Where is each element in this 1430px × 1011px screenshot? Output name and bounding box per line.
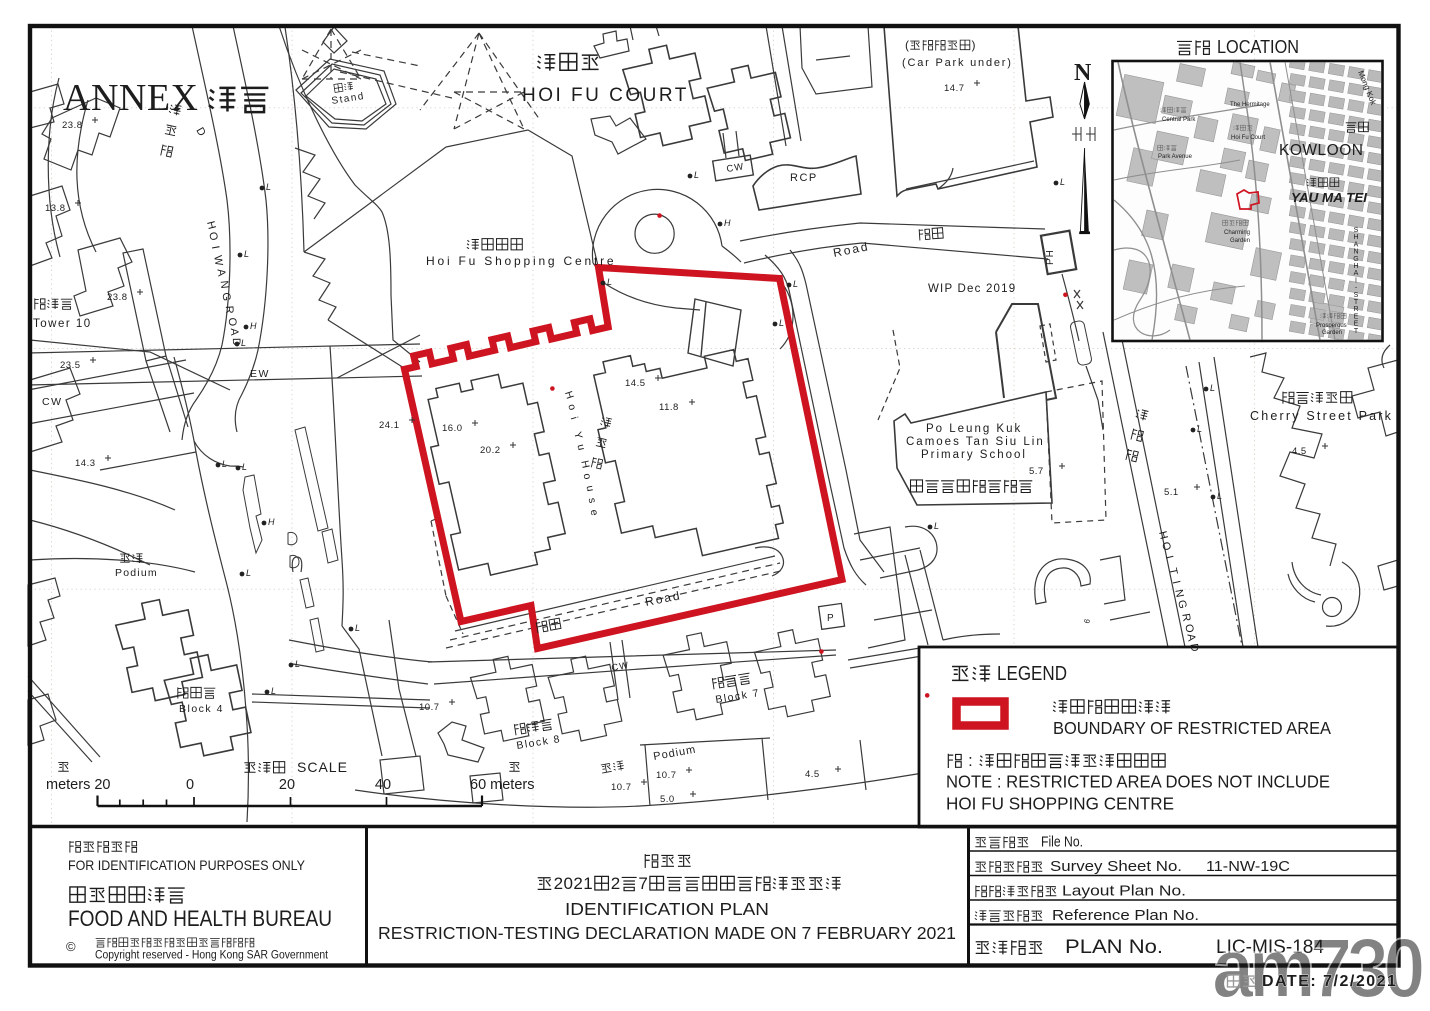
svg-text:5.1: 5.1 [1164, 487, 1179, 498]
svg-text:(Car Park under): (Car Park under) [902, 57, 1013, 69]
svg-text:13.8: 13.8 [45, 203, 66, 214]
svg-text:©: © [66, 939, 76, 954]
svg-text:L: L [1217, 491, 1222, 501]
svg-text:T: T [1354, 299, 1359, 306]
svg-text:14.5: 14.5 [625, 378, 646, 389]
svg-text:PH: PH [1045, 249, 1056, 265]
svg-text:5.0: 5.0 [660, 794, 675, 805]
svg-text:Cherry Street Park: Cherry Street Park [1250, 409, 1393, 423]
svg-text:KOWLOON: KOWLOON [1279, 142, 1363, 159]
svg-text:PLAN No.: PLAN No. [1065, 936, 1163, 958]
svg-text:O: O [226, 317, 238, 327]
svg-text:11.8: 11.8 [659, 402, 679, 413]
svg-text:ANNEX: ANNEX [63, 77, 198, 119]
svg-text:Copyright reserved - Hong Kong: Copyright reserved - Hong Kong SAR Gover… [95, 950, 329, 962]
svg-text:L: L [241, 338, 246, 348]
svg-text:Block 4: Block 4 [179, 703, 224, 715]
svg-text:YAU MA TEI: YAU MA TEI [1291, 191, 1368, 205]
svg-text:RESTRICTION-TESTING DECLARATIO: RESTRICTION-TESTING DECLARATION MADE ON … [378, 923, 956, 943]
svg-text:24.1: 24.1 [379, 420, 400, 431]
svg-text:HOI FU COURT: HOI FU COURT [522, 85, 689, 106]
svg-text:NOTE : RESTRICTED AREA DOES NO: NOTE : RESTRICTED AREA DOES NOT INCLUDE [946, 772, 1330, 792]
svg-text:40: 40 [375, 777, 391, 793]
svg-text:EW: EW [250, 368, 270, 380]
svg-text:I: I [1355, 277, 1357, 284]
svg-text:SCALE: SCALE [297, 759, 348, 775]
svg-text:HOI FU SHOPPING CENTRE: HOI FU SHOPPING CENTRE [946, 794, 1174, 814]
svg-text:Central Park: Central Park [1162, 117, 1196, 123]
svg-text:File No.: File No. [1041, 835, 1083, 851]
svg-text:L: L [295, 659, 300, 669]
svg-text:T: T [1354, 328, 1359, 335]
svg-text:Podium: Podium [115, 567, 158, 579]
svg-text:A: A [1354, 270, 1359, 277]
svg-text:WIP Dec 2019: WIP Dec 2019 [928, 283, 1016, 295]
svg-text:L: L [779, 318, 784, 328]
svg-text:16.0: 16.0 [442, 423, 463, 434]
svg-text:Camoes Tan Siu Lin: Camoes Tan Siu Lin [906, 436, 1045, 448]
svg-text:Po Leung Kuk: Po Leung Kuk [926, 423, 1022, 435]
svg-text:RCP: RCP [790, 172, 818, 184]
svg-text:N: N [218, 280, 231, 289]
svg-text:L: L [246, 568, 251, 578]
svg-text:L: L [934, 521, 939, 531]
svg-text:S: S [1354, 292, 1359, 299]
svg-text:A: A [228, 328, 240, 336]
svg-text:Hoi Fu Court: Hoi Fu Court [1231, 135, 1265, 141]
svg-text:P: P [827, 613, 834, 624]
svg-text:Park Avenue: Park Avenue [1158, 154, 1193, 160]
svg-text:Survey Sheet No.: Survey Sheet No. [1050, 859, 1182, 875]
svg-text:L: L [242, 462, 247, 472]
svg-text:LOCATION: LOCATION [1217, 37, 1299, 57]
svg-text:L: L [271, 686, 276, 696]
svg-text:H: H [268, 517, 275, 527]
svg-text:2: 2 [611, 874, 620, 893]
svg-text:H: H [1353, 234, 1358, 241]
svg-text:E: E [1354, 313, 1359, 320]
svg-text:H: H [250, 321, 257, 331]
svg-text:N: N [1074, 60, 1092, 86]
svg-text:L: L [694, 170, 699, 180]
svg-text:L: L [266, 182, 271, 192]
svg-text:H: H [724, 218, 731, 228]
svg-text:7: 7 [638, 874, 647, 893]
svg-text:E: E [1354, 321, 1359, 328]
svg-text:L: L [1060, 177, 1065, 187]
svg-text:L: L [244, 249, 249, 259]
svg-text:Tower 10: Tower 10 [33, 318, 92, 330]
svg-text:R: R [1353, 306, 1358, 313]
svg-text:Primary School: Primary School [921, 449, 1027, 461]
svg-text:4.5: 4.5 [1292, 446, 1307, 457]
svg-text:): ) [971, 38, 975, 52]
svg-text:Garden: Garden [1230, 238, 1250, 244]
svg-text:Hoi Fu Shopping Centre: Hoi Fu Shopping Centre [426, 254, 616, 268]
svg-text:L: L [1210, 383, 1215, 393]
svg-text:2: 2 [573, 874, 582, 893]
svg-text:20.2: 20.2 [480, 445, 501, 456]
svg-text:IDENTIFICATION PLAN: IDENTIFICATION PLAN [565, 899, 769, 919]
svg-text:R: R [223, 305, 236, 314]
svg-text:Charming: Charming [1224, 230, 1250, 236]
svg-text:2: 2 [554, 874, 563, 893]
svg-text:14.3: 14.3 [75, 458, 96, 469]
svg-text:H: H [1353, 263, 1358, 270]
svg-text:G: G [1353, 256, 1358, 263]
svg-text:20: 20 [279, 777, 295, 793]
svg-text:5.7: 5.7 [1029, 466, 1044, 477]
svg-text:4.5: 4.5 [805, 769, 820, 780]
svg-text:11-NW-19C: 11-NW-19C [1206, 859, 1290, 875]
svg-text:23.8: 23.8 [107, 292, 128, 303]
svg-text:L: L [222, 459, 227, 469]
svg-text:G: G [220, 292, 233, 302]
svg-text:0: 0 [564, 874, 573, 893]
svg-text:Garden: Garden [1322, 330, 1342, 336]
svg-text:L: L [607, 277, 612, 287]
svg-text:am730: am730 [1212, 921, 1423, 1011]
svg-text:FOOD AND HEALTH BUREAU: FOOD AND HEALTH BUREAU [68, 906, 332, 931]
svg-text:A: A [1354, 241, 1359, 248]
svg-text:The Hermitage: The Hermitage [1230, 102, 1270, 108]
svg-text:Reference Plan No.: Reference Plan No. [1052, 908, 1199, 924]
svg-text:10.7: 10.7 [419, 702, 440, 713]
svg-text:23.8: 23.8 [62, 120, 83, 131]
svg-text:L: L [355, 623, 360, 633]
svg-text:FOR IDENTIFICATION PURPOSES ON: FOR IDENTIFICATION PURPOSES ONLY [68, 857, 306, 873]
svg-text:14.7: 14.7 [944, 83, 965, 94]
svg-text:Layout Plan No.: Layout Plan No. [1062, 884, 1186, 900]
svg-text:0: 0 [186, 777, 194, 793]
svg-text:CW: CW [42, 396, 63, 408]
svg-text:L: L [793, 279, 798, 289]
svg-text:1: 1 [583, 874, 592, 893]
svg-text:meters 20: meters 20 [46, 777, 110, 793]
svg-text:N: N [1353, 249, 1358, 256]
svg-text:10.7: 10.7 [611, 782, 632, 793]
svg-text::: : [968, 752, 973, 770]
svg-text:DATE: 7/2/2021: DATE: 7/2/2021 [1262, 973, 1397, 990]
svg-text:LEGEND: LEGEND [997, 662, 1067, 685]
svg-text:L: L [1197, 424, 1202, 434]
svg-text:BOUNDARY OF RESTRICTED AREA: BOUNDARY OF RESTRICTED AREA [1053, 718, 1331, 738]
svg-text:10.7: 10.7 [656, 770, 677, 781]
svg-text:(: ( [905, 38, 909, 52]
svg-text:S: S [1354, 227, 1359, 234]
svg-text:23.5: 23.5 [60, 360, 81, 371]
svg-text:Prosperous: Prosperous [1316, 323, 1347, 329]
svg-text:60 meters: 60 meters [470, 777, 534, 793]
